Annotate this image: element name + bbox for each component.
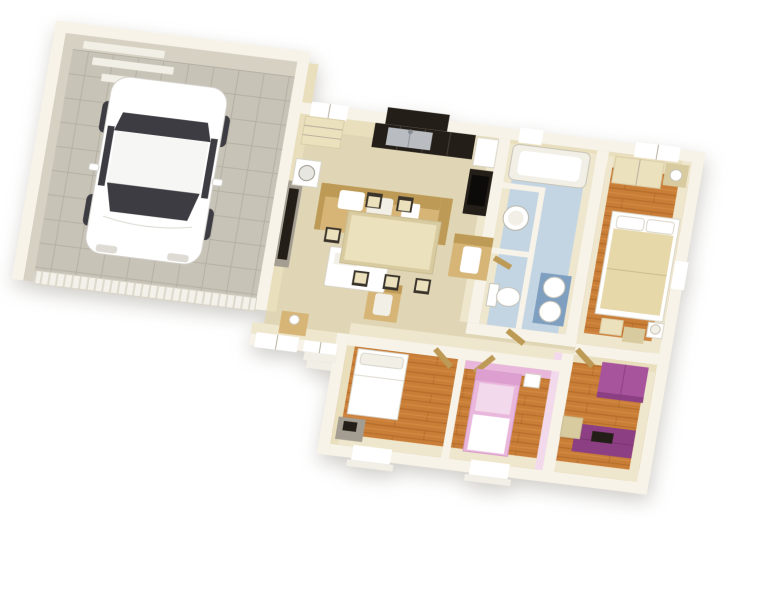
chair [382,274,400,291]
bed-bench [622,327,646,345]
desk-chair [560,416,583,439]
car-mirror [89,163,100,171]
pink-duvet [475,383,515,415]
chair [324,227,342,244]
chair [396,196,414,213]
purple-wardrobe [596,362,648,403]
hall-console [278,311,309,337]
sideboard [301,116,344,149]
armchair [448,233,494,281]
sofa-cushion [337,190,365,212]
bed-sheet [467,414,510,454]
nightstand [523,373,541,388]
side-chair-cushion [372,293,393,317]
chair [352,270,370,287]
floor-plan-render [0,0,780,600]
chair [365,192,383,209]
fridge [473,137,499,168]
chair [413,278,431,295]
isometric-scene [0,20,716,503]
desk-with-monitor [335,416,366,442]
small-window [518,128,544,146]
floor-plan-svg [0,0,780,600]
bed-bench [600,318,624,336]
car-mirror [212,179,223,187]
monitor [342,421,357,432]
